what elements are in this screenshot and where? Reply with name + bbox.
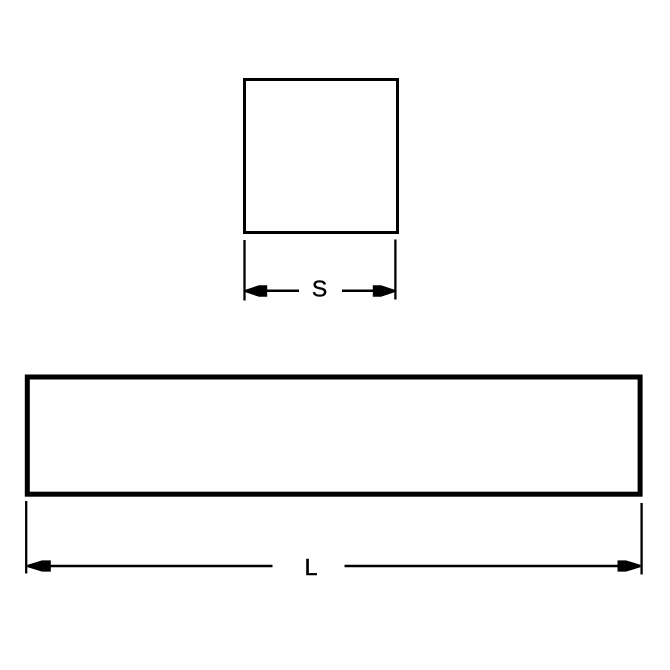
svg-text:L: L <box>304 554 317 580</box>
svg-text:S: S <box>312 276 327 302</box>
